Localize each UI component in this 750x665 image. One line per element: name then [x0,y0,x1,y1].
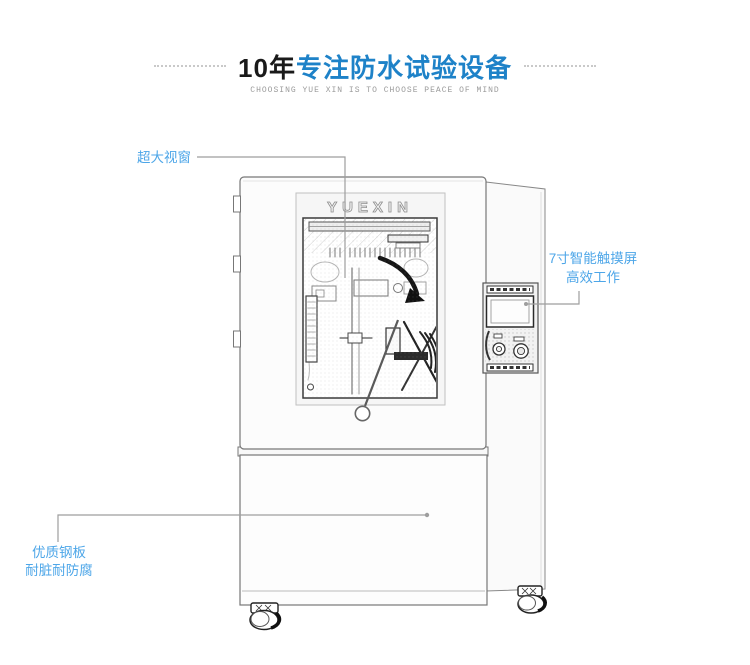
chamber-interior-sketch [304,219,440,397]
caster-left [250,603,279,630]
brand-logo: YUEXIN [327,199,413,216]
touch-panel [483,283,538,373]
machine-side-panel [486,182,545,591]
callout-label-touchscreen: 7寸智能触摸屏 高效工作 [541,249,645,287]
door-hinge-middle [234,256,241,272]
machine-lower-body [240,455,487,605]
door-hinge-bottom [234,331,241,347]
steel-label-line1: 优质钢板 [16,544,102,562]
steel-label-line2: 耐脏耐防腐 [16,562,102,580]
machine-illustration: YUEXIN [0,0,750,665]
callout-label-window: 超大视窗 [137,148,191,167]
touchscreen-label-line2: 高效工作 [541,268,645,287]
callout-label-steel-plate: 优质钢板 耐脏耐防腐 [16,544,102,580]
caster-right [518,586,545,613]
touchscreen-label-line1: 7寸智能触摸屏 [541,249,645,268]
door-hinge-top [234,196,241,212]
